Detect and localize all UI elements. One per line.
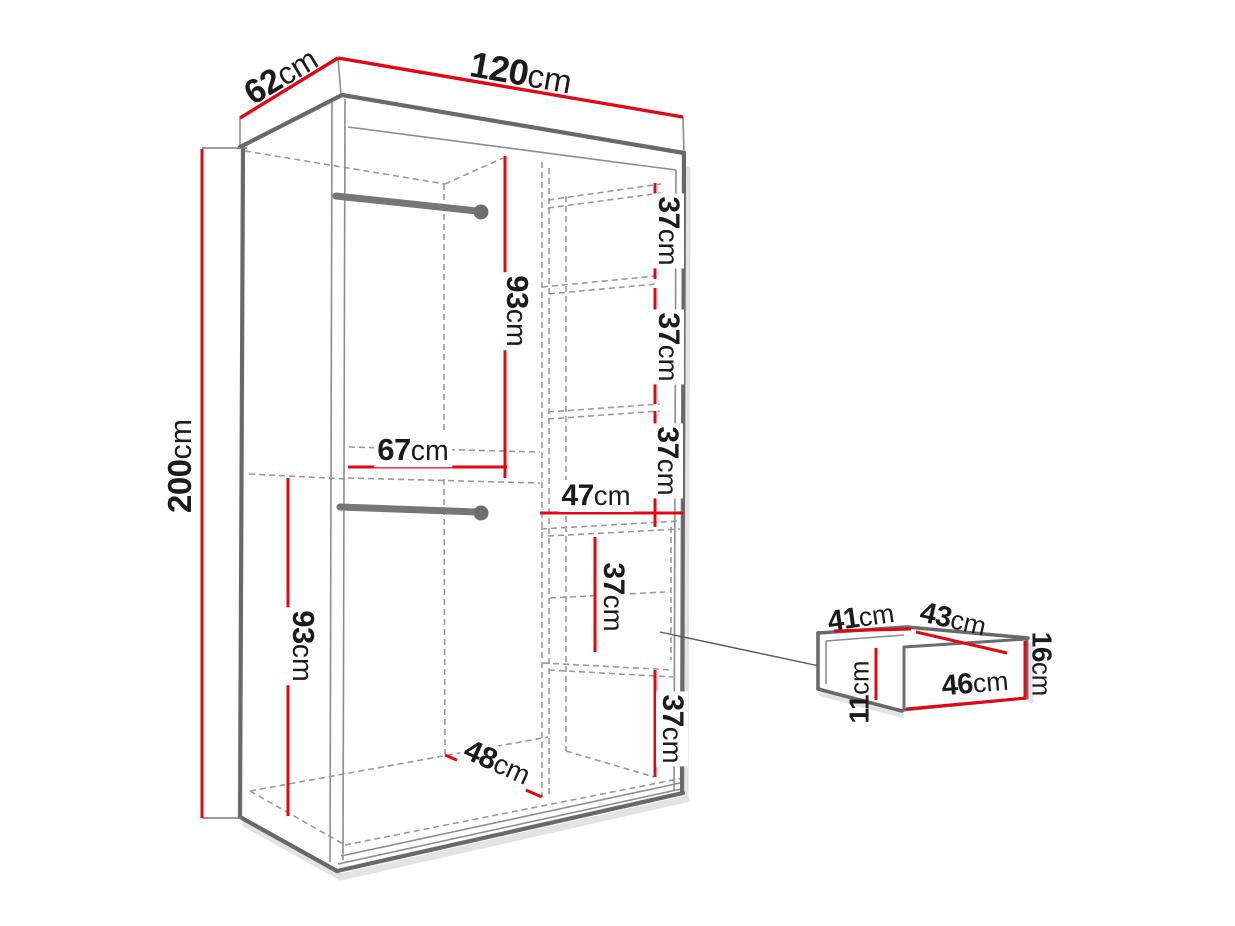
panel-lines: [240, 58, 684, 864]
dim-shelf-gap-top-label: 37cm: [652, 193, 684, 268]
dim-drawer-bay-height-label: 37cm: [597, 559, 629, 634]
dim-lower-hanging-height-label: 93cm: [286, 607, 320, 685]
dim-drawer-inner-height-label: 11cm: [846, 661, 875, 724]
dim-shelf-width-label: 47cm: [558, 480, 633, 512]
dim-upper-hanging-height-label: 93cm: [500, 272, 534, 350]
dim-drawer-front-width-label: 46cm: [940, 667, 1009, 702]
dim-shelf-gap-lower-label: 37cm: [651, 423, 683, 498]
dim-height-label: 200cm: [163, 419, 197, 513]
dim-drawer-front-height-label: 16cm: [1027, 632, 1056, 696]
diagram-canvas: 62cm 120cm 200cm 93cm 67cm 93cm 48cm 37c…: [0, 0, 1235, 926]
hanging-rod-upper: [336, 196, 489, 220]
hanging-rod-lower: [340, 506, 489, 521]
dim-hanging-width-label: 67cm: [374, 433, 452, 467]
dim-shelf-gap-middle-label: 37cm: [652, 309, 684, 384]
dim-bottom-gap-label: 37cm: [656, 691, 688, 766]
